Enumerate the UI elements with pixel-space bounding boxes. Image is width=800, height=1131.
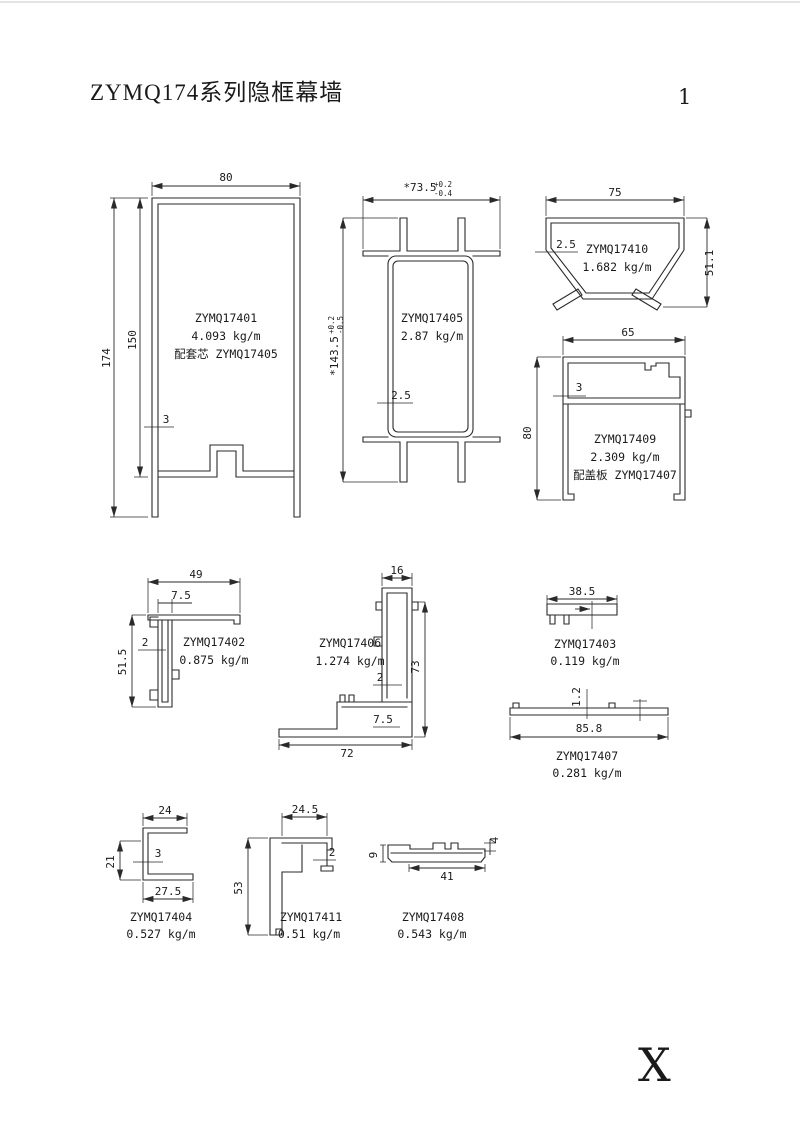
dim-height: 51.1 (703, 250, 716, 277)
profile-code: ZYMQ17411 (280, 910, 342, 924)
dim-width: *73.5 (403, 181, 436, 194)
profile-weight: 1.682 kg/m (582, 260, 651, 274)
profile-note: 配套芯 ZYMQ17405 (174, 347, 278, 361)
dim-top: 16 (390, 564, 403, 577)
profile-code: ZYMQ17408 (402, 910, 464, 924)
profile-weight: 0.51 kg/m (278, 927, 340, 941)
profile-zymq17405: *73.5 +0.2 -0.4 *143.5 +0.2 -0.5 2.5 ZYM… (327, 180, 500, 482)
profile-weight: 0.119 kg/m (550, 654, 619, 668)
dim-width: 80 (219, 171, 232, 184)
dim-width-tol-dn: -0.4 (434, 189, 453, 198)
profile-code: ZYMQ17409 (594, 432, 656, 446)
dim-height: *143.5 (328, 336, 341, 376)
profile-weight: 0.875 kg/m (179, 653, 248, 667)
profile-weight: 4.093 kg/m (191, 329, 260, 343)
profile-weight: 0.527 kg/m (126, 927, 195, 941)
profile-zymq17410: 75 51.1 2.5 ZYMQ17410 1.682 kg/m (535, 186, 716, 310)
dim-step: 7.5 (373, 713, 393, 726)
dim-wall: 2 (377, 671, 384, 684)
profile-weight: 0.281 kg/m (552, 766, 621, 780)
dim-height-tol-up: +0.2 (327, 316, 336, 334)
profile-outline (363, 218, 500, 482)
dim-height: 174 (100, 348, 113, 368)
dim-wall: 2.5 (391, 389, 411, 402)
dim-bottom: 27.5 (155, 885, 182, 898)
profile-note: 配盖板 ZYMQ17407 (573, 468, 677, 482)
profile-zymq17403: 38.5 ZYMQ17403 0.119 kg/m (547, 585, 620, 668)
dim-wall: 3 (155, 847, 162, 860)
dim-height: 21 (104, 855, 117, 868)
profile-zymq17404: 24 21 3 27.5 ZYMQ17404 0.527 kg/m (104, 804, 196, 941)
dim-left: 9 (367, 852, 380, 859)
dim-width: 75 (608, 186, 621, 199)
dim-wall: 1.2 (570, 687, 583, 707)
profile-outline (510, 703, 668, 715)
dim-arm: 7.5 (171, 589, 191, 602)
page-number: 1 (678, 85, 691, 109)
profile-zymq17401: 80 174 150 3 ZYMQ17401 4.093 kg/m 配套芯 ZY… (100, 171, 300, 517)
profile-code: ZYMQ17405 (401, 311, 463, 325)
profile-outline (547, 604, 617, 624)
profile-weight: 1.274 kg/m (315, 654, 384, 668)
dim-width: 85.8 (576, 722, 603, 735)
dim-height: 73 (409, 660, 422, 673)
dim-bottom: 41 (440, 870, 453, 883)
profile-outline (388, 843, 485, 862)
profile-zymq17406: 16 73 72 2 7.5 ZYMQ17406 1.274 kg/m (279, 564, 425, 760)
dim-width: 49 (189, 568, 202, 581)
dim-height: 51.5 (116, 649, 129, 676)
dim-inner-height: 150 (126, 330, 139, 350)
profile-zymq17407: 1.2 85.8 ZYMQ17407 0.281 kg/m (510, 687, 668, 780)
profile-code: ZYMQ17407 (556, 749, 618, 763)
profile-zymq17402: 49 7.5 2 51.5 ZYMQ17402 0.875 kg/m (116, 568, 249, 707)
dim-wall: 2 (142, 636, 149, 649)
dim-base: 72 (340, 747, 353, 760)
dim-top: 24.5 (292, 803, 319, 816)
dim-height: 80 (521, 426, 534, 439)
dim-wall: 2 (329, 846, 336, 859)
profile-weight: 0.543 kg/m (397, 927, 466, 941)
profile-weight: 2.309 kg/m (590, 450, 659, 464)
profile-code: ZYMQ17404 (130, 910, 192, 924)
dim-top: 24 (158, 804, 172, 817)
profile-code: ZYMQ17402 (183, 635, 245, 649)
dim-height: 53 (232, 881, 245, 894)
profile-weight: 2.87 kg/m (401, 329, 463, 343)
dim-width: 38.5 (569, 585, 596, 598)
dim-width-tol-up: +0.2 (434, 180, 452, 189)
profile-zymq17408: 9 4 41 ZYMQ17408 0.543 kg/m (367, 836, 501, 941)
dim-wall: 3 (576, 381, 583, 394)
dim-right: 4 (488, 836, 501, 843)
drawing-canvas: ZYMQ174系列隐框幕墙 1 X 80 174 150 3 ZYMQ17401… (0, 0, 800, 1131)
dim-width: 65 (621, 326, 634, 339)
dim-height-tol-dn: -0.5 (336, 316, 345, 334)
profile-outline (143, 828, 193, 880)
corner-mark: X (638, 1038, 671, 1092)
dim-wall: 2.5 (556, 238, 576, 251)
drawing-sheet: ZYMQ174系列隐框幕墙 1 X 80 174 150 3 ZYMQ17401… (0, 0, 800, 1131)
dim-height-group: *143.5 +0.2 -0.5 (327, 316, 345, 376)
profile-code: ZYMQ17401 (195, 311, 257, 325)
profile-zymq17409: 65 80 3 ZYMQ17409 2.309 kg/m 配盖板 ZYMQ174… (521, 326, 691, 500)
profile-code: ZYMQ17406 (319, 636, 381, 650)
profile-code: ZYMQ17410 (586, 242, 648, 256)
dim-wall: 3 (163, 413, 170, 426)
sheet-title: ZYMQ174系列隐框幕墙 (90, 80, 343, 105)
profile-code: ZYMQ17403 (554, 637, 616, 651)
profile-zymq17411: 24.5 2 53 ZYMQ17411 0.51 kg/m (232, 803, 342, 941)
